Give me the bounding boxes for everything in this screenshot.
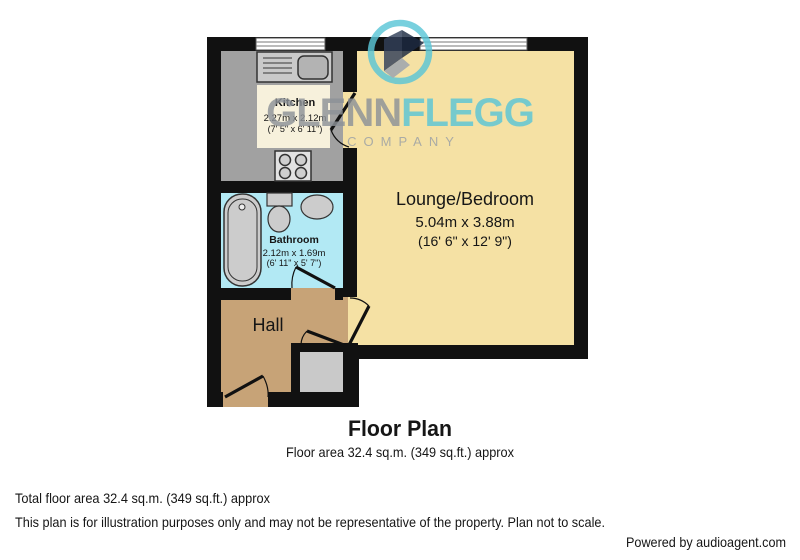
total-floor-area-text: Total floor area 32.4 sq.m. (349 sq.ft.)… [15, 490, 270, 506]
floor-area-subtitle: Floor area 32.4 sq.m. (349 sq.ft.) appro… [286, 444, 514, 460]
bathroom-dims-imperial: (6' 11" x 5' 7") [267, 258, 322, 268]
bathroom-label: Bathroom [269, 234, 319, 246]
lounge-dims-imperial: (16' 6" x 12' 9") [418, 233, 512, 249]
powered-by-credit: Powered by audioagent.com [626, 534, 786, 550]
hob-icon [275, 151, 311, 181]
kitchen-window-icon [256, 38, 325, 50]
hall-lounge-doorway [343, 297, 348, 343]
floor-plan-canvas: Kitchen 2.27m x 2.12m (7' 5" x 6' 11") B… [0, 0, 800, 560]
closet-floor [300, 352, 343, 392]
basin-icon [301, 195, 333, 219]
floor-plan-page: Kitchen 2.27m x 2.12m (7' 5" x 6' 11") B… [0, 0, 800, 560]
disclaimer-text: This plan is for illustration purposes o… [15, 514, 605, 530]
brand-subtitle: COMPANY [347, 134, 461, 149]
brand-wordmark: GLENNFLEGG [266, 91, 534, 135]
bathroom-doorway [291, 288, 335, 300]
page-title: Floor Plan [348, 416, 452, 441]
hall-label: Hall [252, 315, 283, 335]
brand-wordmark-part2: FLEGG [401, 91, 534, 135]
lounge-label: Lounge/Bedroom [396, 189, 534, 209]
kitchen-sink-icon [257, 52, 332, 82]
lounge-window-icon [420, 38, 527, 50]
toilet-icon [267, 193, 292, 232]
brand-wordmark-part1: GLENN [266, 91, 401, 135]
bathtub-icon [224, 194, 261, 286]
lounge-dims-metric: 5.04m x 3.88m [415, 214, 514, 231]
